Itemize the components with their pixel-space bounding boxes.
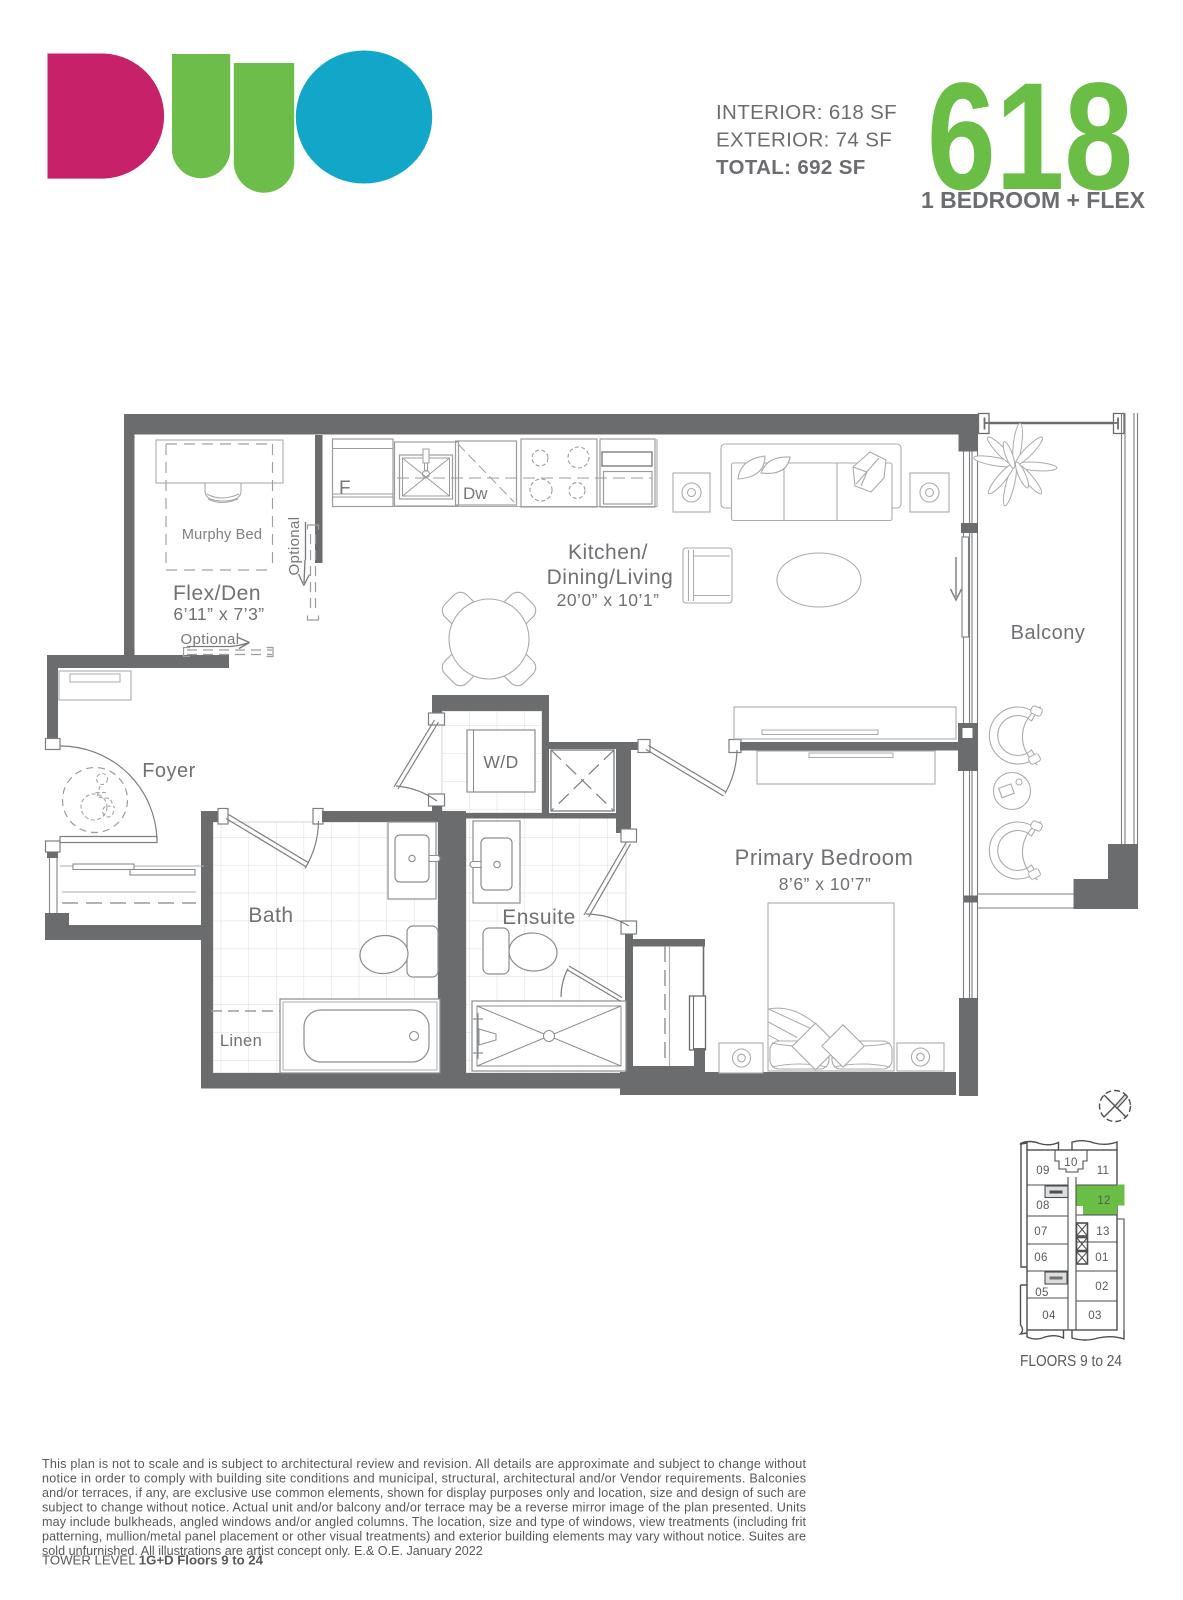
svg-text:1 BEDROOM + FLEX: 1 BEDROOM + FLEX — [921, 187, 1146, 213]
svg-text:Ensuite: Ensuite — [502, 906, 576, 929]
svg-text:patterning, mullion/metal pane: patterning, mullion/metal panel placemen… — [42, 1530, 806, 1544]
svg-text:W/D: W/D — [483, 752, 518, 772]
svg-text:Optional: Optional — [286, 516, 303, 575]
svg-text:12: 12 — [1097, 1195, 1110, 1207]
svg-text:Kitchen/: Kitchen/ — [568, 541, 648, 564]
svg-text:05: 05 — [1035, 1287, 1048, 1299]
svg-text:11: 11 — [1097, 1165, 1110, 1177]
svg-text:Flex/Den: Flex/Den — [173, 582, 261, 605]
svg-text:Dw: Dw — [463, 484, 488, 503]
svg-text:13: 13 — [1096, 1226, 1109, 1238]
svg-text:and/or terraces, if any, are e: and/or terraces, if any, are exclusive u… — [42, 1486, 806, 1500]
svg-text:notice in order to comply with: notice in order to comply with building … — [42, 1472, 806, 1486]
svg-text:TOWER LEVEL 1G+D Floors 9 to 2: TOWER LEVEL 1G+D Floors 9 to 24 — [42, 1553, 264, 1568]
svg-text:Foyer: Foyer — [142, 760, 196, 782]
svg-text:FLOORS 9 to 24: FLOORS 9 to 24 — [1020, 1353, 1122, 1370]
svg-text:TOTAL: 692 SF: TOTAL: 692 SF — [716, 156, 866, 179]
svg-text:07: 07 — [1034, 1226, 1047, 1238]
svg-text:20’0” x 10’1”: 20’0” x 10’1” — [557, 590, 660, 610]
svg-text:08: 08 — [1036, 1200, 1049, 1212]
svg-text:09: 09 — [1036, 1165, 1049, 1177]
svg-text:01: 01 — [1095, 1252, 1108, 1264]
svg-text:Primary Bedroom: Primary Bedroom — [735, 845, 914, 870]
svg-text:EXTERIOR: 74 SF: EXTERIOR: 74 SF — [716, 129, 892, 152]
svg-text:8’6” x 10’7”: 8’6” x 10’7” — [779, 874, 872, 894]
svg-text:Dining/Living: Dining/Living — [547, 566, 674, 589]
svg-text:10: 10 — [1064, 1157, 1077, 1169]
svg-text:Linen: Linen — [220, 1032, 262, 1050]
svg-text:This plan is not to scale and: This plan is not to scale and is subject… — [42, 1457, 807, 1471]
svg-text:Murphy Bed: Murphy Bed — [182, 527, 262, 543]
svg-text:03: 03 — [1088, 1310, 1101, 1322]
svg-text:02: 02 — [1095, 1281, 1108, 1293]
svg-text:may include bulkheads, angled: may include bulkheads, angled windows an… — [42, 1515, 807, 1529]
svg-text:subject to change without noti: subject to change without notice. Actual… — [42, 1501, 806, 1515]
svg-text:INTERIOR: 618 SF: INTERIOR: 618 SF — [716, 101, 897, 124]
svg-text:Bath: Bath — [248, 904, 293, 927]
svg-text:Optional: Optional — [180, 631, 239, 648]
svg-text:Balcony: Balcony — [1011, 622, 1086, 644]
svg-text:F: F — [339, 478, 351, 499]
svg-text:06: 06 — [1034, 1252, 1047, 1264]
svg-text:04: 04 — [1042, 1310, 1056, 1322]
svg-text:6’11” x 7’3”: 6’11” x 7’3” — [173, 604, 264, 624]
